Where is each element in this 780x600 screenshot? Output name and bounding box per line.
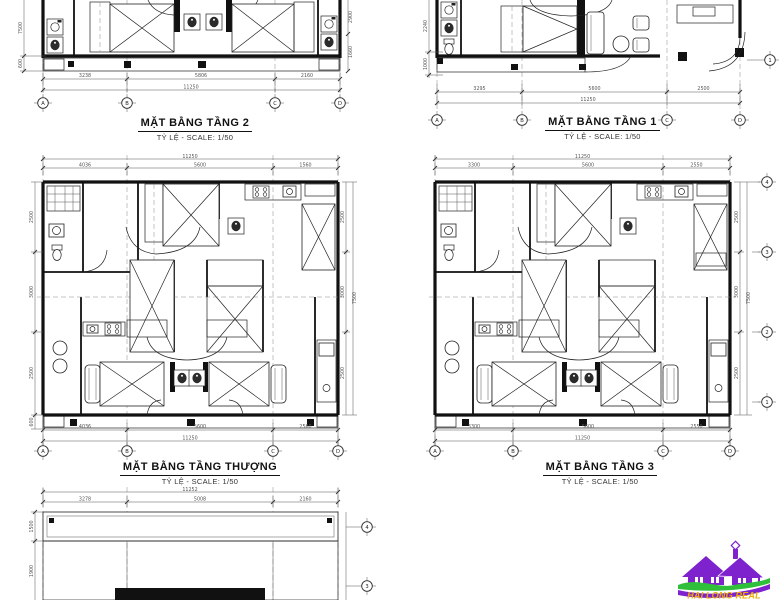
table-icon — [613, 36, 629, 52]
dimension-lines-top: 11250 4036 5600 1560 — [41, 154, 340, 175]
dim-label: 5600 — [194, 424, 206, 430]
grid-label: B — [125, 449, 129, 455]
stairs-icon — [501, 6, 523, 52]
dim-label: 2550 — [690, 163, 702, 169]
dim-total-label: 11250 — [580, 97, 595, 103]
dim-label: 5600 — [588, 86, 600, 92]
plan-title: MẶT BẰNG TẦNG 1 — [545, 117, 660, 131]
washer-icon — [441, 2, 457, 18]
sink-icon — [206, 14, 222, 30]
sink-icon — [47, 37, 63, 53]
balcony — [43, 58, 340, 71]
grid-label: 1 — [765, 400, 768, 406]
dim-label: 2500 — [29, 367, 35, 379]
plan-scale: TỶ LỆ - SCALE: 1/50 — [425, 133, 780, 141]
floor-plan-tang-2: 3238 5806 2160 11250 7500 600 2900 1660 … — [30, 0, 360, 150]
plan-scale: TỶ LỆ - SCALE: 1/50 — [30, 478, 370, 486]
grid-bubbles: A B C D — [34, 94, 349, 112]
grid-label: D — [336, 449, 340, 455]
chair-icons — [633, 16, 649, 52]
plan-title-block: MẶT BẰNG TẦNG 2 TỶ LỆ - SCALE: 1/50 — [30, 114, 360, 142]
dim-label: 5600 — [582, 163, 594, 169]
dim-label: 5600 — [194, 163, 206, 169]
dim-label: 2900 — [348, 11, 354, 23]
grid-label: D — [728, 449, 732, 455]
floor-plan-tang-3: 11250 3300 5600 2550 2500 3000 2500 7500… — [420, 155, 780, 487]
dim-label: 2160 — [299, 497, 311, 503]
dimension-lines-right: 2500 3000 2500 7500 — [340, 182, 358, 415]
dimension-lines-left: 1500 1900 — [29, 510, 43, 600]
dim-label: 2240 — [423, 20, 429, 32]
plan-drawing-tang-thuong: 11250 4036 5600 1560 2500 3000 2500 600 … — [30, 155, 370, 455]
dim-label: 3238 — [79, 73, 91, 79]
sink-icon — [321, 34, 337, 50]
house-icon — [682, 541, 764, 585]
dim-label: 5806 — [195, 73, 207, 79]
plan-scale: TỶ LỆ - SCALE: 1/50 — [30, 134, 360, 142]
plan-title: MẶT BẰNG TẦNG THƯỢNG — [120, 462, 280, 476]
dimension-lines-top: 11250 3300 5600 2550 — [433, 154, 732, 175]
bed-icon — [232, 4, 294, 52]
dim-label: 2500 — [734, 367, 740, 379]
floor-plan-tang-thuong: 11250 4036 5600 1560 2500 3000 2500 600 … — [30, 155, 370, 487]
dim-label: 600 — [18, 59, 24, 68]
grid-label: 2 — [765, 330, 768, 336]
plan-title-block: MẶT BẰNG TẦNG 1 TỶ LỆ - SCALE: 1/50 — [425, 113, 780, 141]
dim-label: 3300 — [468, 424, 480, 430]
dimension-lines-right: 2500 3000 2500 7500 — [734, 182, 752, 415]
dimension-lines-left: 2500 3000 2500 600 — [29, 182, 43, 429]
hai-long-real-logo-icon: HAI LONG REAL — [674, 540, 776, 600]
terrace — [43, 512, 338, 541]
washer-icon — [321, 16, 337, 32]
dim-label: 7500 — [18, 22, 24, 34]
balcony — [437, 56, 631, 72]
dim-label: 2500 — [734, 211, 740, 223]
grid-label: C — [273, 101, 277, 107]
dim-label: 1900 — [29, 565, 35, 577]
bed-icon — [110, 4, 174, 52]
drawing-sheet: { "sheet": {"background": "#ffffff", "li… — [0, 0, 780, 600]
desk-icon — [677, 5, 733, 23]
plan-title: MẶT BẰNG TẦNG 3 — [543, 462, 658, 476]
dim-label: 1500 — [29, 520, 35, 532]
plan-title-block: MẶT BẰNG TẦNG 3 TỶ LỆ - SCALE: 1/50 — [420, 458, 780, 486]
sink-icon — [184, 14, 200, 30]
dim-total-label: 11250 — [182, 154, 197, 160]
wc-icon — [444, 39, 454, 55]
dim-label: 1000 — [423, 58, 429, 70]
dim-total-label: 11250 — [575, 154, 590, 160]
grid-label: C — [661, 449, 665, 455]
dim-label: 3000 — [734, 286, 740, 298]
plan-drawing-roof: 11252 3278 5008 2160 1500 1900 4 3 — [30, 487, 385, 600]
roof-tiles — [43, 541, 338, 600]
dim-total-label: 11250 — [575, 436, 590, 442]
dim-label: 2550 — [690, 424, 702, 430]
dim-label: 1560 — [299, 163, 311, 169]
sink-icon — [441, 20, 457, 36]
dim-label: 4036 — [79, 424, 91, 430]
grid-label: B — [511, 449, 515, 455]
plan-scale: TỶ LỆ - SCALE: 1/50 — [420, 478, 780, 486]
grid-bubbles-right: 4 3 2 1 — [752, 173, 776, 411]
dim-total-label: 7500 — [746, 292, 752, 304]
grid-label: C — [271, 449, 275, 455]
plan-body — [37, 182, 344, 428]
grid-label: 3 — [365, 584, 368, 590]
grid-label: 1 — [768, 58, 771, 64]
dim-label: 2500 — [29, 211, 35, 223]
dim-total-label: 11250 — [183, 85, 198, 91]
stairs-icon — [90, 2, 110, 52]
dim-label: 2500 — [697, 86, 709, 92]
sofa-icon — [587, 12, 604, 54]
dim-label: 3000 — [340, 286, 346, 298]
dim-label: 2160 — [301, 73, 313, 79]
plan-title-block: MẶT BẰNG TẦNG THƯỢNG TỶ LỆ - SCALE: 1/50 — [30, 458, 370, 486]
dim-label: 3278 — [79, 497, 91, 503]
dim-label: 2500 — [340, 367, 346, 379]
grid-label: A — [41, 449, 45, 455]
dim-total-label: 11252 — [182, 487, 197, 493]
dim-label: 3000 — [29, 286, 35, 298]
stairs-icon — [294, 2, 314, 52]
logo-text: HAI LONG REAL — [687, 591, 761, 600]
roof-plan: 11252 3278 5008 2160 1500 1900 4 3 — [30, 487, 385, 600]
dim-label: 5600 — [582, 424, 594, 430]
dim-label: 3300 — [468, 163, 480, 169]
washer-icon — [47, 19, 63, 35]
dim-label: 3295 — [473, 86, 485, 92]
dim-label: 5008 — [194, 497, 206, 503]
dim-total-label: 7500 — [352, 292, 358, 304]
plan-title: MẶT BẰNG TẦNG 2 — [138, 118, 253, 132]
dim-label: 600 — [29, 417, 35, 426]
floor-plan-tang-1: 1 2240 1000 3295 5600 2500 11250 A B C D… — [425, 0, 780, 150]
dim-label: 2560 — [299, 424, 311, 430]
grid-label: 3 — [765, 250, 768, 256]
grid-label: B — [125, 101, 129, 107]
grid-label: D — [338, 101, 342, 107]
grid-label: A — [433, 449, 437, 455]
plan-body — [429, 182, 736, 428]
dim-label: 4036 — [79, 163, 91, 169]
grid-bubbles-right: 4 3 — [346, 512, 376, 600]
dim-total-label: 11250 — [182, 436, 197, 442]
dimension-lines-top: 11252 3278 5008 2160 — [41, 487, 340, 507]
dim-label: 2500 — [340, 211, 346, 223]
dim-label: 1660 — [348, 46, 354, 58]
plan-drawing-tang-3: 11250 3300 5600 2550 2500 3000 2500 7500… — [420, 155, 780, 455]
grid-label: A — [41, 101, 45, 107]
wardrobe-icon — [523, 6, 577, 52]
company-logo: HAI LONG REAL — [674, 540, 776, 600]
